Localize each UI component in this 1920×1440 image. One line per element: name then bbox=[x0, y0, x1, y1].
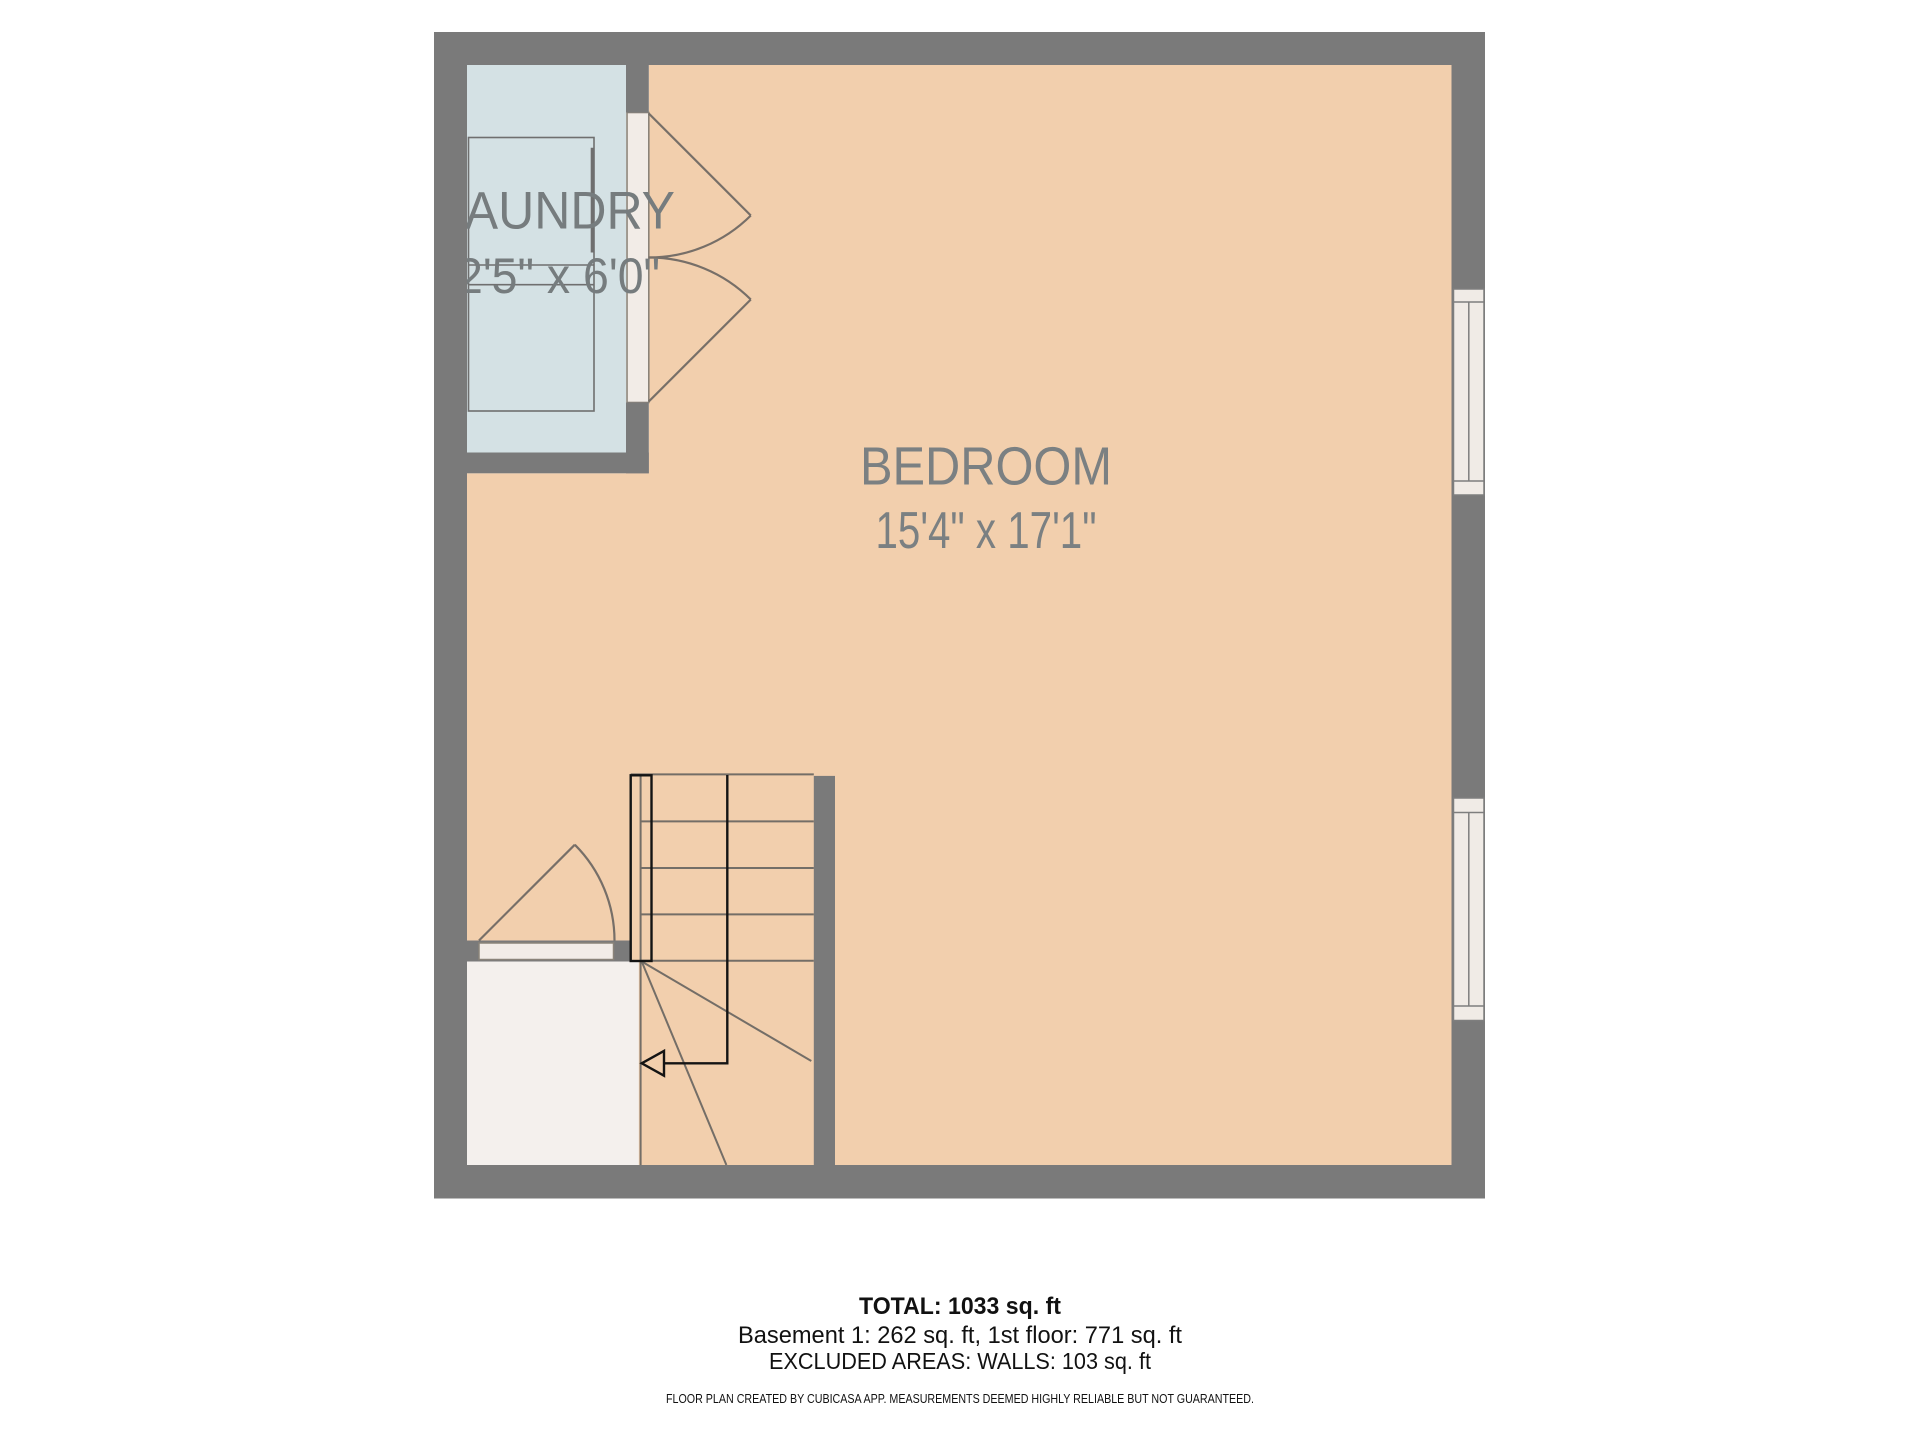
svg-text:LAUNDRY: LAUNDRY bbox=[437, 182, 675, 241]
svg-text:15'4" x 17'1": 15'4" x 17'1" bbox=[876, 502, 1097, 560]
svg-text:2'5" x 6'0": 2'5" x 6'0" bbox=[457, 248, 660, 304]
svg-text:TOTAL: 1033 sq. ft: TOTAL: 1033 sq. ft bbox=[859, 1293, 1061, 1320]
svg-text:FLOOR PLAN CREATED BY CUBICASA: FLOOR PLAN CREATED BY CUBICASA APP. MEAS… bbox=[666, 1392, 1254, 1406]
svg-text:BEDROOM: BEDROOM bbox=[860, 436, 1112, 496]
svg-text:EXCLUDED AREAS: WALLS: 103 sq.: EXCLUDED AREAS: WALLS: 103 sq. ft bbox=[769, 1348, 1152, 1374]
svg-text:Basement 1: 262 sq. ft, 1st fl: Basement 1: 262 sq. ft, 1st floor: 771 s… bbox=[738, 1322, 1182, 1349]
